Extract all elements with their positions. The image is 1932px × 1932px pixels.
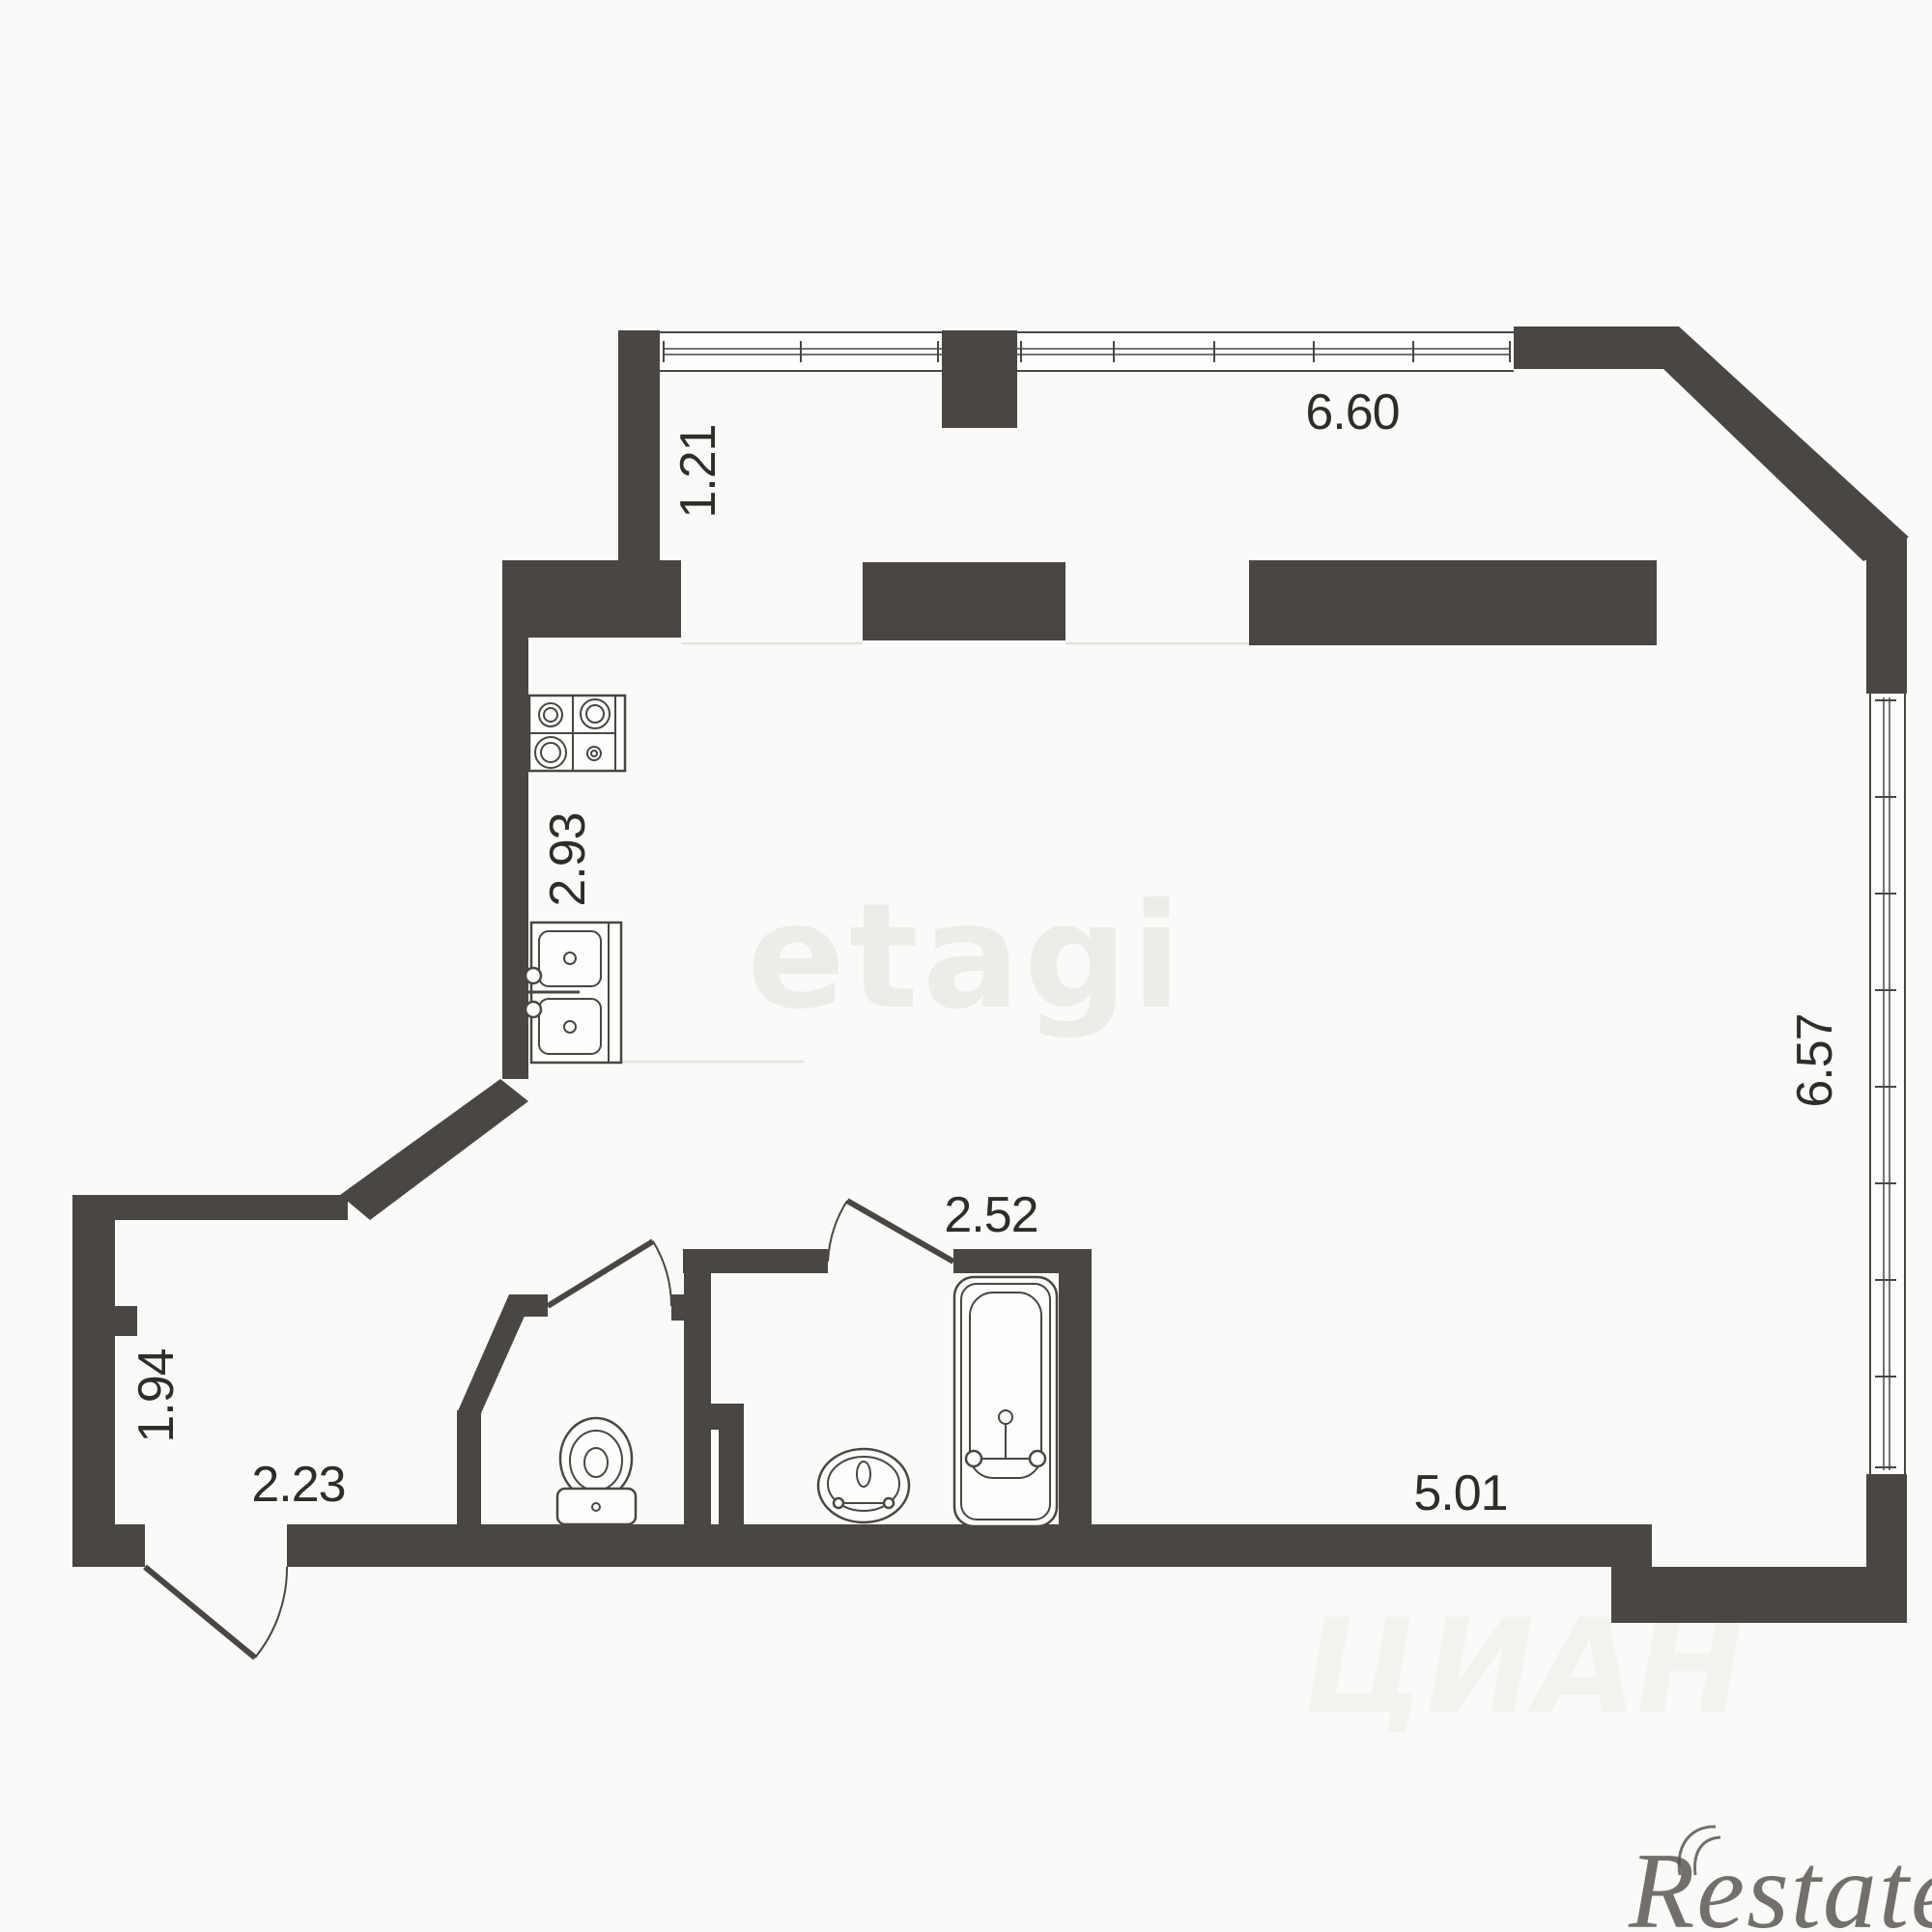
wall-left-exterior xyxy=(72,1195,115,1567)
entrance-door-arc xyxy=(255,1567,287,1658)
bathroom-door-leaf xyxy=(847,1201,953,1262)
restate-watermark-text: Restate xyxy=(1628,1832,1932,1932)
top-window-band xyxy=(660,332,1514,371)
wall-bath-side-partition xyxy=(719,1430,744,1524)
dimension-label-hall-depth: 1.94 xyxy=(128,1349,185,1442)
bathroom-door xyxy=(828,1201,953,1262)
fixtures xyxy=(520,696,1057,1526)
wall-wc-door-stub-left xyxy=(509,1294,548,1317)
entrance-door-leaf xyxy=(145,1567,255,1658)
stove-icon xyxy=(529,696,625,771)
wall-interior-bar-right xyxy=(1249,560,1657,645)
wall-left-nub xyxy=(115,1306,137,1336)
wall-bath-right xyxy=(1059,1273,1092,1524)
watermark-etagi: etagi xyxy=(747,873,1184,1041)
wall-partition-connector xyxy=(711,1404,744,1430)
dimension-label-loggia-depth: 1.21 xyxy=(670,424,726,518)
wall-right-upper xyxy=(1866,537,1907,694)
dimension-label-kitchen-wall: 2.93 xyxy=(540,812,596,906)
floorplan-canvas: etagi ЦИАН xyxy=(0,0,1932,1932)
wall-bottom-main xyxy=(287,1524,1652,1567)
bathroom-door-arc xyxy=(828,1201,847,1262)
wall-interior-bar-left xyxy=(863,562,1065,640)
etagi-watermark-text: etagi xyxy=(747,873,1184,1041)
kitchen-sink-icon xyxy=(520,923,621,1063)
wall-bath-top-right xyxy=(953,1249,1092,1273)
wall-top-right-diagonal xyxy=(1663,327,1909,561)
wall-kitchen-top xyxy=(502,560,681,638)
wall-upper-left-vertical xyxy=(618,330,660,562)
wall-bottom-right-step xyxy=(1611,1567,1907,1623)
doors xyxy=(145,1201,953,1658)
wall-hall-diagonal xyxy=(340,1079,528,1220)
bathtub-icon xyxy=(954,1277,1057,1526)
wall-bottom-left-of-door xyxy=(72,1524,145,1567)
wall-wc-bath-partition xyxy=(684,1249,711,1524)
dimension-label-bathroom-width: 2.52 xyxy=(944,1187,1037,1243)
wc-door-leaf xyxy=(548,1241,653,1306)
wall-right-lower xyxy=(1866,1474,1907,1623)
wall-window-pier xyxy=(942,330,1017,428)
wall-wc-left-vertical xyxy=(457,1410,481,1524)
wall-kitchen-left xyxy=(502,638,528,1079)
wc-door-arc xyxy=(653,1241,671,1306)
wall-top-right-horizontal xyxy=(1514,327,1679,369)
dimension-label-right-window-height: 6.57 xyxy=(1787,1013,1843,1107)
right-window-band xyxy=(1866,694,1907,1474)
floorplan-svg: etagi ЦИАН xyxy=(0,0,1932,1932)
watermark-restate: Restate xyxy=(1628,1827,1932,1932)
wc-door xyxy=(548,1241,671,1306)
dimension-label-hall-width: 2.23 xyxy=(251,1457,345,1513)
toilet-icon xyxy=(557,1418,636,1524)
entrance-door xyxy=(145,1567,287,1658)
washbasin-icon xyxy=(818,1449,909,1522)
wall-bath-top-left xyxy=(683,1249,828,1273)
dimension-label-top-window-width: 6.60 xyxy=(1305,384,1399,440)
dimension-label-bottom-wall: 5.01 xyxy=(1413,1465,1507,1521)
